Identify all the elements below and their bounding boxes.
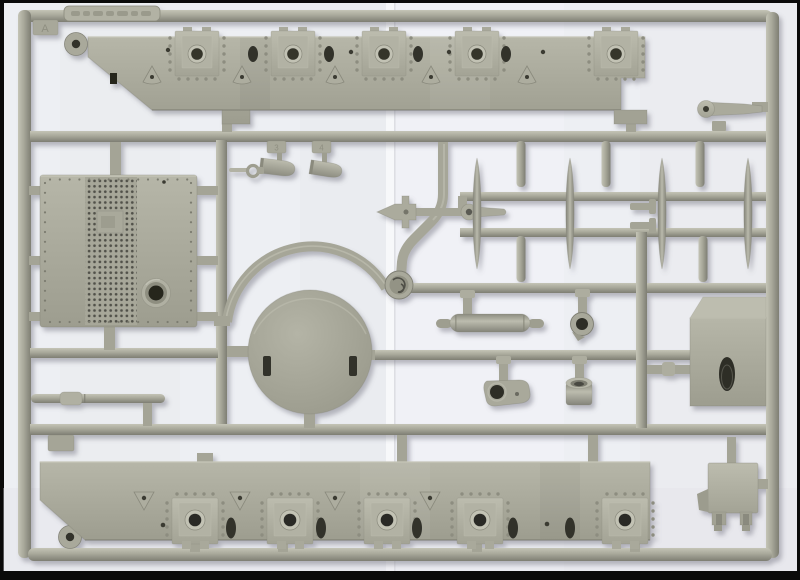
rivet (260, 501, 263, 504)
rivet (400, 77, 403, 80)
rivet (614, 492, 617, 495)
barrel-tip (528, 319, 544, 328)
rivet (44, 260, 46, 262)
rivet (651, 509, 654, 512)
port-hole (610, 48, 622, 60)
rivet (484, 77, 487, 80)
rivet (587, 44, 590, 47)
small-hole (447, 50, 451, 54)
rivet (306, 492, 309, 495)
rivet (168, 60, 171, 63)
rivet (186, 178, 188, 180)
turret-ring-disc (248, 290, 372, 414)
gate-stub (104, 326, 115, 350)
rect-slot (110, 73, 117, 84)
cable-reel-junction (385, 271, 413, 299)
rivet (300, 77, 303, 80)
clip-part (630, 222, 652, 229)
rivet (270, 492, 273, 495)
rivet (641, 52, 644, 55)
port-hole (471, 48, 483, 60)
rivet (605, 77, 608, 80)
rivet (157, 178, 159, 180)
rivet (355, 68, 358, 71)
rivet (127, 321, 129, 323)
rivet (165, 517, 168, 520)
rivet (394, 492, 397, 495)
ring-hole (576, 318, 588, 330)
short-rod (696, 141, 705, 187)
runner-v3 (636, 232, 647, 428)
oval-slot (316, 518, 326, 539)
rivet (44, 251, 46, 253)
runner-h4 (30, 424, 766, 435)
small-hole (166, 48, 170, 52)
port-hole (474, 514, 487, 527)
rivet (641, 44, 644, 47)
rivet (44, 231, 46, 233)
rivet (264, 60, 267, 63)
rivet (413, 509, 416, 512)
panel-end-tab (614, 110, 647, 124)
barrel-body (450, 314, 530, 332)
rivet (168, 68, 171, 71)
rivet (222, 60, 225, 63)
rivet (222, 36, 225, 39)
rivet (59, 321, 61, 323)
perforated-grille-panel (40, 175, 197, 327)
rivet (297, 492, 300, 495)
oval-slot (412, 518, 422, 539)
short-rod (517, 236, 526, 282)
rivet (651, 501, 654, 504)
rivet (385, 492, 388, 495)
rivet (190, 221, 192, 223)
perforated-mesh-band (85, 177, 137, 325)
rivet (457, 77, 460, 80)
rivet (59, 178, 61, 180)
rivet (190, 280, 192, 282)
rivet (264, 44, 267, 47)
rivet (186, 321, 188, 323)
rivet (409, 60, 412, 63)
rivet (651, 517, 654, 520)
oval-slot (508, 518, 518, 539)
runner-v1 (216, 140, 227, 430)
rivet (98, 321, 100, 323)
rivet (78, 178, 80, 180)
gate-stub (196, 256, 218, 265)
rivet (177, 77, 180, 80)
rivet (450, 533, 453, 536)
eyelet-hole (66, 533, 74, 541)
rivet (496, 492, 499, 495)
oval-slot (248, 46, 258, 62)
rivet (641, 492, 644, 495)
runner-rail-left (18, 10, 31, 558)
photo-of-model-sprue: A (0, 0, 800, 580)
short-rod (602, 141, 611, 187)
rivet (318, 44, 321, 47)
port-hole (381, 514, 394, 527)
rivet (651, 525, 654, 528)
runner-rail-bottom (28, 548, 772, 561)
rivet (506, 517, 509, 520)
rivet (78, 321, 80, 323)
rivet (118, 178, 120, 180)
gate-letter: A (41, 23, 49, 35)
sprue-photo: A (0, 0, 800, 580)
rivet (221, 533, 224, 536)
rivet (450, 509, 453, 512)
oval-slot (501, 46, 511, 62)
base-plate (708, 463, 758, 513)
rivet (165, 533, 168, 536)
rivet (222, 52, 225, 55)
rivet (502, 36, 505, 39)
rivet (44, 300, 46, 302)
disc-slot (263, 356, 271, 376)
rivet (260, 517, 263, 520)
rivet (44, 202, 46, 204)
rivet (595, 517, 598, 520)
rivet (190, 202, 192, 204)
rivet (190, 290, 192, 292)
rivet (364, 77, 367, 80)
rivet (168, 52, 171, 55)
rivet (222, 68, 225, 71)
rivet (318, 52, 321, 55)
disc-body (248, 290, 372, 414)
rivet (595, 533, 598, 536)
rivet (190, 309, 192, 311)
rivet (147, 321, 149, 323)
rivet (213, 77, 216, 80)
rivet (260, 509, 263, 512)
rivet (190, 241, 192, 243)
rivet (651, 533, 654, 536)
box-top-face (690, 297, 766, 318)
rivet (44, 192, 46, 194)
rivet (98, 178, 100, 180)
gate-stub (214, 316, 230, 326)
rivet (318, 36, 321, 39)
rivet (448, 44, 451, 47)
rivet (69, 321, 71, 323)
rivet (506, 509, 509, 512)
lever-hole (703, 106, 709, 112)
rivet (355, 36, 358, 39)
port-hole (191, 48, 203, 60)
rivet (165, 509, 168, 512)
rivet (641, 60, 644, 63)
tag-number-4: 4 (319, 144, 324, 153)
runner-rail-right (766, 12, 779, 558)
rivet (316, 509, 319, 512)
rivet (157, 321, 159, 323)
port-hole (378, 48, 390, 60)
short-rod (699, 236, 708, 282)
rivet (186, 77, 189, 80)
rivet (641, 36, 644, 39)
port-hole (619, 514, 632, 527)
rivet (44, 280, 46, 282)
rivet (357, 509, 360, 512)
rivet (44, 270, 46, 272)
rivet (469, 492, 472, 495)
rivet (221, 501, 224, 504)
molded-label-plate (64, 6, 160, 21)
rivet (88, 178, 90, 180)
rivet (391, 77, 394, 80)
rivet (357, 517, 360, 520)
rivet (49, 321, 51, 323)
rivet (448, 60, 451, 63)
rivet (190, 270, 192, 272)
rivet (487, 492, 490, 495)
short-rod (517, 141, 526, 187)
hull-side-panel-bottom (40, 453, 655, 549)
rivet (190, 211, 192, 213)
rivet (221, 517, 224, 520)
small-hole (545, 522, 550, 527)
gate-stub (196, 186, 218, 195)
rivet (475, 77, 478, 80)
rivet (168, 44, 171, 47)
rivet (587, 60, 590, 63)
rivet (382, 77, 385, 80)
rivet (595, 501, 598, 504)
rivet (309, 77, 312, 80)
rivet (221, 525, 224, 528)
gate-letter-tab: A (33, 20, 58, 35)
gate-stub (397, 435, 407, 463)
rivet (193, 492, 196, 495)
rivet (44, 241, 46, 243)
rivet (623, 77, 626, 80)
rivet (211, 492, 214, 495)
port-hole (189, 514, 202, 527)
clip-part (630, 203, 652, 210)
rivet (641, 68, 644, 71)
rivet (118, 321, 120, 323)
rivet (167, 178, 169, 180)
rivet (357, 533, 360, 536)
rivet (168, 36, 171, 39)
rivet (403, 492, 406, 495)
rivet (167, 321, 169, 323)
rivet (273, 77, 276, 80)
gate-stub (588, 435, 598, 463)
rivet (450, 501, 453, 504)
small-hole (161, 523, 166, 528)
rivet (260, 533, 263, 536)
rivet (165, 501, 168, 504)
rivet (318, 60, 321, 63)
rivet (450, 525, 453, 528)
rivet (264, 36, 267, 39)
rivet (190, 182, 192, 184)
rivet (632, 77, 635, 80)
rivet (165, 525, 168, 528)
rivet (202, 492, 205, 495)
rivet (587, 52, 590, 55)
rivet (264, 68, 267, 71)
rivet (595, 509, 598, 512)
disc-slot (349, 356, 357, 376)
rivet (204, 77, 207, 80)
oval-slot (324, 46, 334, 62)
rivet (450, 517, 453, 520)
gate-stub (757, 479, 768, 489)
runner-grid-a (460, 192, 766, 201)
port-hole (287, 48, 299, 60)
oval-slot (413, 46, 423, 62)
rivet (409, 52, 412, 55)
rivet (460, 492, 463, 495)
rivet (596, 77, 599, 80)
runner-h3-left (30, 348, 218, 358)
rivet (376, 492, 379, 495)
rivet (466, 77, 469, 80)
rivet (190, 231, 192, 233)
runner-h2 (30, 131, 766, 142)
rivet (632, 492, 635, 495)
rivet (137, 178, 139, 180)
rivet (190, 251, 192, 253)
rivet (282, 77, 285, 80)
rivet (355, 60, 358, 63)
rivet (279, 492, 282, 495)
gate-stub (727, 437, 736, 464)
rivet (49, 178, 51, 180)
rivet (316, 501, 319, 504)
gate-stub (110, 142, 121, 176)
rivet (195, 77, 198, 80)
rivet (190, 260, 192, 262)
port-hole (149, 286, 164, 301)
small-tab (712, 121, 726, 131)
rivet (355, 52, 358, 55)
rivet (587, 68, 590, 71)
rivet (190, 192, 192, 194)
tag-number-3: 3 (274, 144, 279, 153)
rivet (264, 52, 267, 55)
rivet (260, 525, 263, 528)
rivet (448, 36, 451, 39)
small-hole (162, 180, 166, 184)
rod-collar (60, 392, 82, 405)
rivet (367, 492, 370, 495)
hull-side-panel-top (65, 27, 648, 124)
rivet (605, 492, 608, 495)
rivet (127, 178, 129, 180)
rivet (357, 501, 360, 504)
rivet (108, 178, 110, 180)
rivet (88, 321, 90, 323)
rivet (318, 68, 321, 71)
runner-grid-b (460, 228, 766, 237)
rivet (478, 492, 481, 495)
rivet (357, 525, 360, 528)
rivet (502, 68, 505, 71)
rivet (44, 221, 46, 223)
rivet (291, 77, 294, 80)
rivet (413, 501, 416, 504)
rivet (176, 321, 178, 323)
small-hole (541, 50, 545, 54)
rivet (44, 182, 46, 184)
small-block-part (48, 435, 74, 451)
port-hole (284, 514, 297, 527)
rivet (44, 309, 46, 311)
oval-slot (565, 518, 575, 539)
rivet (409, 44, 412, 47)
rivet (623, 492, 626, 495)
rivet (506, 501, 509, 504)
bracket-hole (490, 385, 504, 399)
rivet (222, 44, 225, 47)
gate-stub (143, 402, 152, 426)
barrel-tip (436, 319, 452, 328)
rivet (373, 77, 376, 80)
rivet (175, 492, 178, 495)
rivet (184, 492, 187, 495)
rivet (176, 178, 178, 180)
rivet (614, 77, 617, 80)
rivet (221, 509, 224, 512)
rivet (409, 36, 412, 39)
rivet (44, 211, 46, 213)
rivet (448, 68, 451, 71)
rivet (409, 68, 412, 71)
oval-slot (226, 518, 236, 539)
small-hole (349, 50, 353, 54)
rivet (595, 525, 598, 528)
rivet (493, 77, 496, 80)
rivet (137, 321, 139, 323)
rivet (44, 290, 46, 292)
rivet (108, 321, 110, 323)
rivet (288, 492, 291, 495)
rivet (69, 178, 71, 180)
rivet (587, 36, 590, 39)
rivet (355, 44, 358, 47)
rivet (147, 178, 149, 180)
eyelet-hole (72, 40, 80, 48)
rivet (190, 300, 192, 302)
